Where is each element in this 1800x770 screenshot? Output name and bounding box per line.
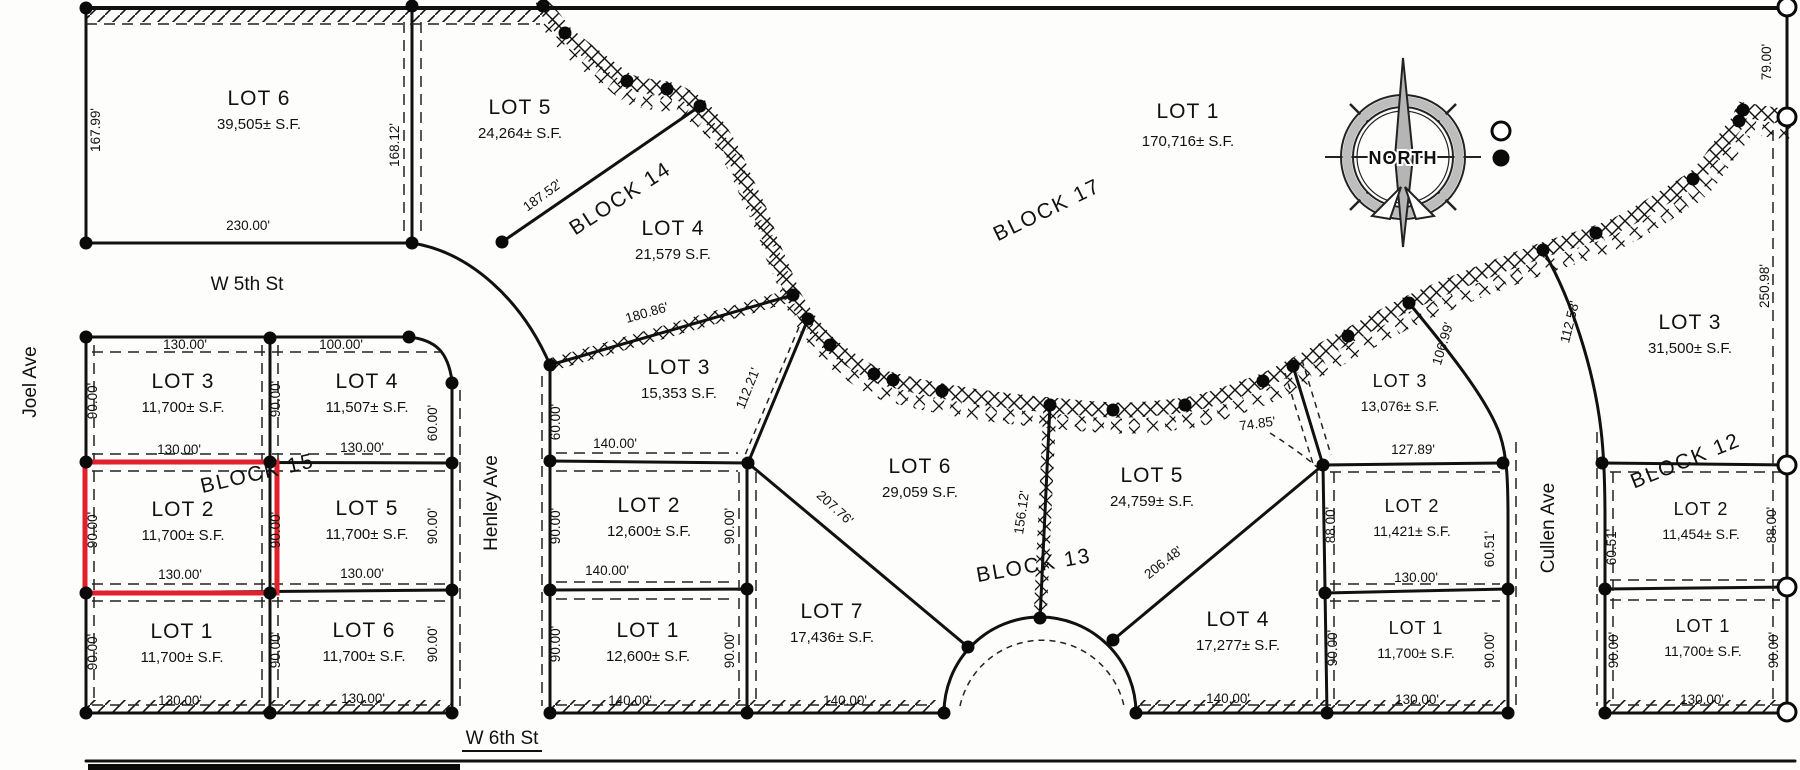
- monument-dot: [446, 707, 459, 720]
- lot-area-b12-lot1: 11,700± S.F.: [1664, 643, 1741, 659]
- dimension-label-23: 90.00': [425, 508, 440, 544]
- monument-dot: [264, 332, 277, 345]
- lot-name-b12-lot3: LOT 3: [1659, 311, 1722, 334]
- monument-dot: [80, 456, 93, 469]
- lot-name-b13-lot2-east: LOT 2: [1385, 496, 1440, 516]
- monument-dot: [1497, 457, 1510, 470]
- dimension-label-24: 90.00': [548, 508, 563, 544]
- dimension-label-52: 130.00': [1680, 692, 1724, 707]
- lot-name-b13-lot3: LOT 3: [1373, 371, 1428, 391]
- monument-dot: [80, 237, 93, 250]
- dimension-label-50: 90.00': [1606, 632, 1621, 668]
- monument-dot: [1537, 244, 1550, 257]
- monument-dot: [80, 587, 93, 600]
- monument-dot: [1737, 104, 1750, 117]
- monument-dot: [1257, 375, 1270, 388]
- dimension-label-2: 168.12': [387, 123, 402, 167]
- dimension-label-35: 130.00': [341, 691, 385, 706]
- lot-b15-lot2[interactable]: LOT 211,700± S.F.: [141, 498, 224, 544]
- plat-svg: NORTH W 5th StJoel AveHenley AveCullen A…: [0, 0, 1800, 770]
- lot-b13-lot5: LOT 524,759± S.F.: [1110, 464, 1194, 510]
- monument-dot: [824, 339, 837, 352]
- monument-dot: [1107, 634, 1120, 647]
- dimension-label-32: 90.00': [548, 626, 563, 662]
- dimension-label-48: 60.51': [1604, 529, 1619, 565]
- boundary-open-circle: [1778, 108, 1796, 126]
- dimension-label-42: 60.51': [1482, 531, 1497, 567]
- monument-dot: [1321, 707, 1334, 720]
- boundary-open-circle: [1778, 0, 1796, 16]
- monument-dot: [80, 707, 93, 720]
- monument-dot: [868, 368, 881, 381]
- lot-area-b15-lot2: 11,700± S.F.: [141, 527, 224, 544]
- lot-b13-lot2-east: LOT 211,421± S.F.: [1373, 496, 1450, 539]
- dimension-label-51: 90.00': [1766, 632, 1781, 668]
- lot-b13-lot1-west: LOT 112,600± S.F.: [606, 619, 690, 665]
- monument-dot: [544, 584, 557, 597]
- monument-dot: [80, 331, 93, 344]
- lot-name-b13-lot6: LOT 6: [889, 455, 952, 478]
- dimension-label-44: 90.00': [1325, 630, 1340, 666]
- lot-name-b14-lot5: LOT 5: [489, 96, 552, 119]
- lot-area-b14-lot4: 21,579 S.F.: [635, 246, 711, 263]
- monument-dot: [741, 583, 754, 596]
- street-label-w-5th-st: W 5th St: [211, 274, 285, 295]
- lot-b15-lot5: LOT 511,700± S.F.: [325, 497, 408, 543]
- lot-area-b13-lot3: 13,076± S.F.: [1361, 398, 1440, 414]
- subdivision-boundary: [543, 6, 1790, 426]
- block-label-block-12: BLOCK 12: [1627, 429, 1744, 494]
- monument-dot: [962, 641, 975, 654]
- dimension-label-33: 90.00': [722, 632, 737, 668]
- lot-b12-lot3: LOT 331,500± S.F.: [1648, 311, 1732, 357]
- monument-dot: [936, 385, 949, 398]
- lot-name-b13-lot4: LOT 4: [1207, 608, 1270, 631]
- lot-name-b14-lot4: LOT 4: [642, 217, 705, 240]
- lot-name-b14-lot3: LOT 3: [648, 356, 711, 379]
- north-compass: NORTH: [1325, 58, 1481, 247]
- monument-dot: [1590, 227, 1603, 240]
- dimension-label-18: 60.00': [425, 405, 440, 441]
- boundary-open-circle: [1778, 703, 1796, 721]
- monument-dot: [694, 100, 707, 113]
- lot-b14-lot5: LOT 524,264± S.F.: [478, 96, 562, 142]
- monument-dot: [1044, 399, 1057, 412]
- boundary-open-circle: [1778, 578, 1796, 596]
- lot-area-b13-lot5: 24,759± S.F.: [1110, 493, 1194, 510]
- dimension-label-9: 112.58': [1557, 299, 1582, 344]
- dimension-label-30: 90.00': [268, 632, 283, 668]
- lot-area-b17-lot1: 170,716± S.F.: [1142, 133, 1234, 150]
- dimension-label-43: 130.00': [1394, 570, 1438, 585]
- lot-area-b14-lot5: 24,264± S.F.: [478, 125, 562, 142]
- monument-dot: [661, 83, 674, 96]
- monument-dot: [446, 377, 459, 390]
- lot-name-b13-lot5: LOT 5: [1121, 464, 1184, 487]
- dimension-label-19: 60.00': [548, 404, 563, 440]
- block-label-block-17: BLOCK 17: [990, 174, 1105, 246]
- lot-area-b15-lot1: 11,700± S.F.: [140, 649, 223, 666]
- monument-dot: [741, 707, 754, 720]
- dimension-label-49: 88.00': [1764, 507, 1779, 543]
- lot-name-b12-lot1: LOT 1: [1676, 616, 1731, 636]
- monument-dot: [544, 455, 557, 468]
- monument-dot: [264, 587, 277, 600]
- lot-name-b15-lot1: LOT 1: [151, 620, 214, 643]
- lot-area-b14-lot6: 39,505± S.F.: [217, 116, 301, 133]
- dimension-label-12: 130.00': [163, 337, 207, 352]
- monument-dot: [496, 236, 509, 249]
- dimension-label-34: 130.00': [158, 693, 202, 708]
- monument-dot: [1403, 297, 1416, 310]
- monument-dot: [1687, 173, 1700, 186]
- lot-area-b15-lot5: 11,700± S.F.: [325, 526, 408, 543]
- street-label-cullen-ave: Cullen Ave: [1538, 483, 1559, 574]
- boundary-open-circle: [1778, 456, 1796, 474]
- dimension-label-29: 90.00': [85, 634, 100, 670]
- dimension-label-39: 156.12': [1011, 490, 1032, 536]
- lot-name-b15-lot3: LOT 3: [152, 370, 215, 393]
- lot-area-b13-lot1-west: 12,600± S.F.: [606, 648, 690, 665]
- monument-dot: [621, 75, 634, 88]
- monument-dot: [1179, 399, 1192, 412]
- dimension-label-41: 88.00': [1323, 507, 1338, 543]
- monument-dot: [802, 313, 815, 326]
- dimension-label-46: 130.00': [1395, 692, 1439, 707]
- legend-open-circle-symbol: [1492, 122, 1510, 140]
- dimension-label-5: 112.21': [733, 366, 763, 411]
- dimension-label-25: 90.00': [722, 508, 737, 544]
- dimension-label-3: 187.52': [520, 176, 564, 214]
- lot-area-b13-lot2-west: 12,600± S.F.: [607, 523, 691, 540]
- dimension-label-45: 90.00': [1482, 632, 1497, 668]
- dimension-label-1: 230.00': [226, 218, 270, 233]
- lot-b14-lot6: LOT 639,505± S.F.: [217, 87, 301, 133]
- monument-dot: [544, 707, 557, 720]
- lot-name-b15-lot5: LOT 5: [336, 497, 399, 520]
- street-label-w-6th-st: W 6th St: [466, 728, 540, 749]
- road-hatch-bands: [86, 9, 1787, 712]
- lot-b14-lot3: LOT 315,353 S.F.: [641, 356, 717, 402]
- dimension-label-8: 106.99': [1429, 321, 1456, 367]
- dimension-label-36: 140.00': [608, 693, 652, 708]
- lot-name-b13-lot1-west: LOT 1: [617, 619, 680, 642]
- lot-area-b13-lot4: 17,277± S.F.: [1196, 637, 1280, 654]
- street-label-joel-ave: Joel Ave: [20, 346, 41, 417]
- lot-b13-lot6: LOT 629,059 S.F.: [882, 455, 958, 501]
- lot-b15-lot4: LOT 411,507± S.F.: [325, 370, 408, 416]
- monument-dot: [544, 359, 557, 372]
- monument-dot: [1317, 459, 1330, 472]
- lot-b15-lot6: LOT 611,700± S.F.: [322, 619, 405, 665]
- monument-dot: [80, 2, 93, 15]
- monument-dot: [1319, 587, 1332, 600]
- dimension-label-17: 130.00': [340, 440, 384, 455]
- lot-b12-lot2: LOT 211,454± S.F.: [1662, 499, 1739, 542]
- lot-b13-lot7: LOT 717,436± S.F.: [790, 600, 874, 646]
- monument-dot: [1502, 583, 1515, 596]
- lot-b12-lot1: LOT 111,700± S.F.: [1664, 616, 1741, 659]
- lot-b14-lot4: LOT 421,579 S.F.: [635, 217, 711, 263]
- lot-name-b17-lot1: LOT 1: [1157, 100, 1220, 123]
- dimension-label-14: 90.00': [85, 383, 100, 419]
- lot-name-b15-lot2[interactable]: LOT 2: [152, 498, 215, 521]
- block-label-block-15: BLOCK 15: [198, 449, 317, 498]
- monument-dot: [787, 289, 800, 302]
- plat-map: NORTH W 5th StJoel AveHenley AveCullen A…: [0, 0, 1800, 770]
- lot-b13-lot4: LOT 417,277± S.F.: [1196, 608, 1280, 654]
- monument-dot: [1107, 404, 1120, 417]
- monument-dot: [403, 331, 416, 344]
- monument-dot: [1599, 583, 1612, 596]
- street-label-henley-ave: Henley Ave: [481, 455, 502, 551]
- monument-dots: [80, 0, 1750, 720]
- lot-name-b13-lot7: LOT 7: [801, 600, 864, 623]
- lot-name-b14-lot6: LOT 6: [228, 87, 291, 110]
- lot-area-b15-lot6: 11,700± S.F.: [322, 648, 405, 665]
- monument-dot: [406, 0, 419, 13]
- lot-area-b14-lot3: 15,353 S.F.: [641, 385, 717, 402]
- lot-b17-lot1: LOT 1170,716± S.F.: [1142, 100, 1234, 150]
- lot-b15-lot1: LOT 111,700± S.F.: [140, 620, 223, 666]
- monument-dot: [1599, 707, 1612, 720]
- legend-filled-circle-symbol: [1493, 150, 1510, 167]
- monument-dot: [1130, 707, 1143, 720]
- lot-name-b13-lot1-east: LOT 1: [1389, 618, 1444, 638]
- lot-name-b12-lot2: LOT 2: [1674, 499, 1729, 519]
- monument-dot: [887, 374, 900, 387]
- lot-b15-lot3: LOT 311,700± S.F.: [141, 370, 224, 416]
- lot-name-b15-lot4: LOT 4: [336, 370, 399, 393]
- lot-b13-lot2-west: LOT 212,600± S.F.: [607, 494, 691, 540]
- lot-area-b15-lot3: 11,700± S.F.: [141, 399, 224, 416]
- dimension-label-40: 206.48': [1141, 543, 1185, 582]
- dimension-label-7: 250.98': [1757, 264, 1772, 308]
- dimension-label-16: 130.00': [157, 442, 201, 457]
- dimension-label-10: 74.85': [1238, 414, 1276, 434]
- setback-dashed-lines: [86, 22, 1780, 706]
- dimension-label-4: 180.86': [624, 299, 670, 326]
- monument-dot: [446, 457, 459, 470]
- monument-dot: [1596, 457, 1609, 470]
- dimension-label-11: 127.89': [1391, 442, 1435, 457]
- monument-dot: [742, 457, 755, 470]
- lot-area-b13-lot2-east: 11,421± S.F.: [1373, 523, 1450, 539]
- lot-area-b13-lot6: 29,059 S.F.: [882, 484, 958, 501]
- monument-dot: [537, 0, 550, 13]
- dimension-label-15: 90.00': [268, 381, 283, 417]
- lot-area-b12-lot3: 31,500± S.F.: [1648, 340, 1732, 357]
- monument-dot: [1342, 330, 1355, 343]
- dimension-label-0: 167.99': [88, 108, 103, 152]
- lot-name-b13-lot2-west: LOT 2: [618, 494, 681, 517]
- monument-dot: [1287, 360, 1300, 373]
- monument-dot: [446, 584, 459, 597]
- dimension-label-28: 140.00': [585, 563, 629, 578]
- north-label: NORTH: [1369, 148, 1438, 168]
- dimension-label-47: 140.00': [1206, 691, 1250, 706]
- monument-dot: [264, 707, 277, 720]
- monument-dot: [1502, 707, 1515, 720]
- dimension-label-26: 130.00': [158, 567, 202, 582]
- dimension-label-13: 100.00': [319, 337, 363, 352]
- monument-dot: [938, 707, 951, 720]
- lot-b13-lot3: LOT 313,076± S.F.: [1361, 371, 1440, 414]
- dimension-label-21: 90.00': [85, 512, 100, 548]
- dimension-label-37: 140.00': [823, 693, 867, 708]
- lot-area-b13-lot1-east: 11,700± S.F.: [1377, 645, 1454, 661]
- monument-dot: [559, 27, 572, 40]
- lot-area-b15-lot4: 11,507± S.F.: [325, 399, 408, 416]
- dimension-label-6: 79.00': [1759, 44, 1774, 80]
- dimension-label-22: 90.00': [268, 512, 283, 548]
- dimension-label-20: 140.00': [593, 436, 637, 451]
- lot-area-b13-lot7: 17,436± S.F.: [790, 629, 874, 646]
- block-label-block-13: BLOCK 13: [975, 544, 1094, 587]
- dimension-label-27: 130.00': [340, 566, 384, 581]
- lot-area-b12-lot2: 11,454± S.F.: [1662, 526, 1739, 542]
- dimension-label-31: 90.00': [425, 626, 440, 662]
- lot-b13-lot1-east: LOT 111,700± S.F.: [1377, 618, 1454, 661]
- lot-name-b15-lot6: LOT 6: [333, 619, 396, 642]
- monument-dot: [406, 237, 419, 250]
- legend: [1492, 122, 1510, 167]
- monument-dot: [1034, 612, 1047, 625]
